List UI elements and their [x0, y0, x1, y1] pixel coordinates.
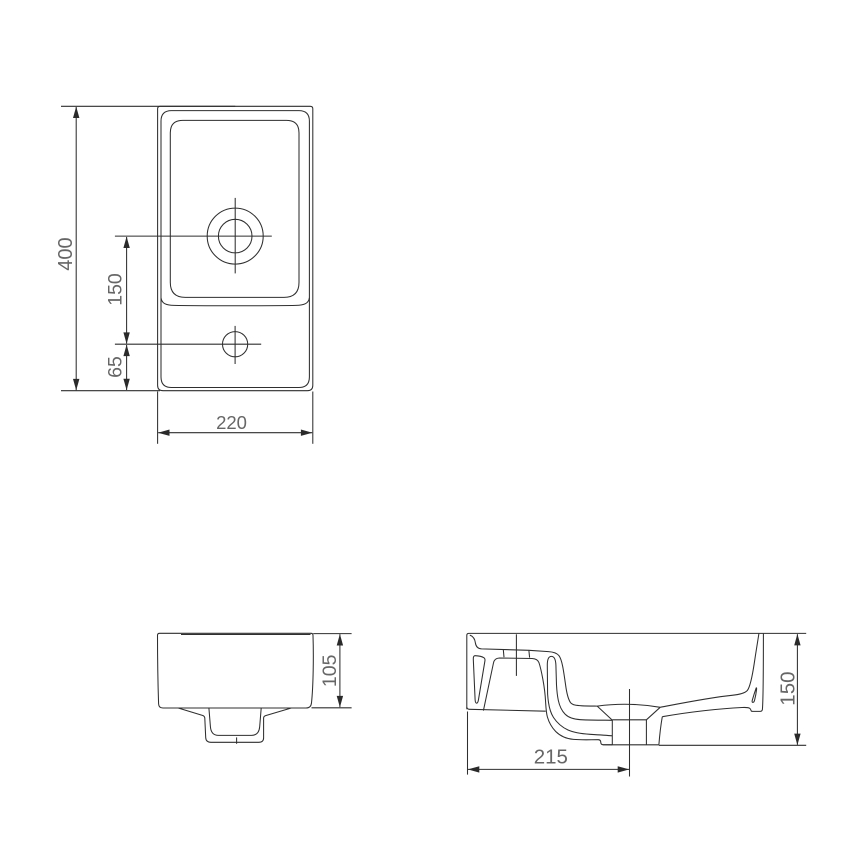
svg-text:400: 400 [55, 237, 77, 270]
svg-text:150: 150 [776, 671, 799, 705]
svg-text:150: 150 [104, 273, 126, 306]
svg-text:215: 215 [534, 746, 568, 769]
svg-text:105: 105 [319, 654, 341, 687]
svg-text:65: 65 [104, 356, 126, 378]
svg-text:220: 220 [216, 412, 247, 433]
